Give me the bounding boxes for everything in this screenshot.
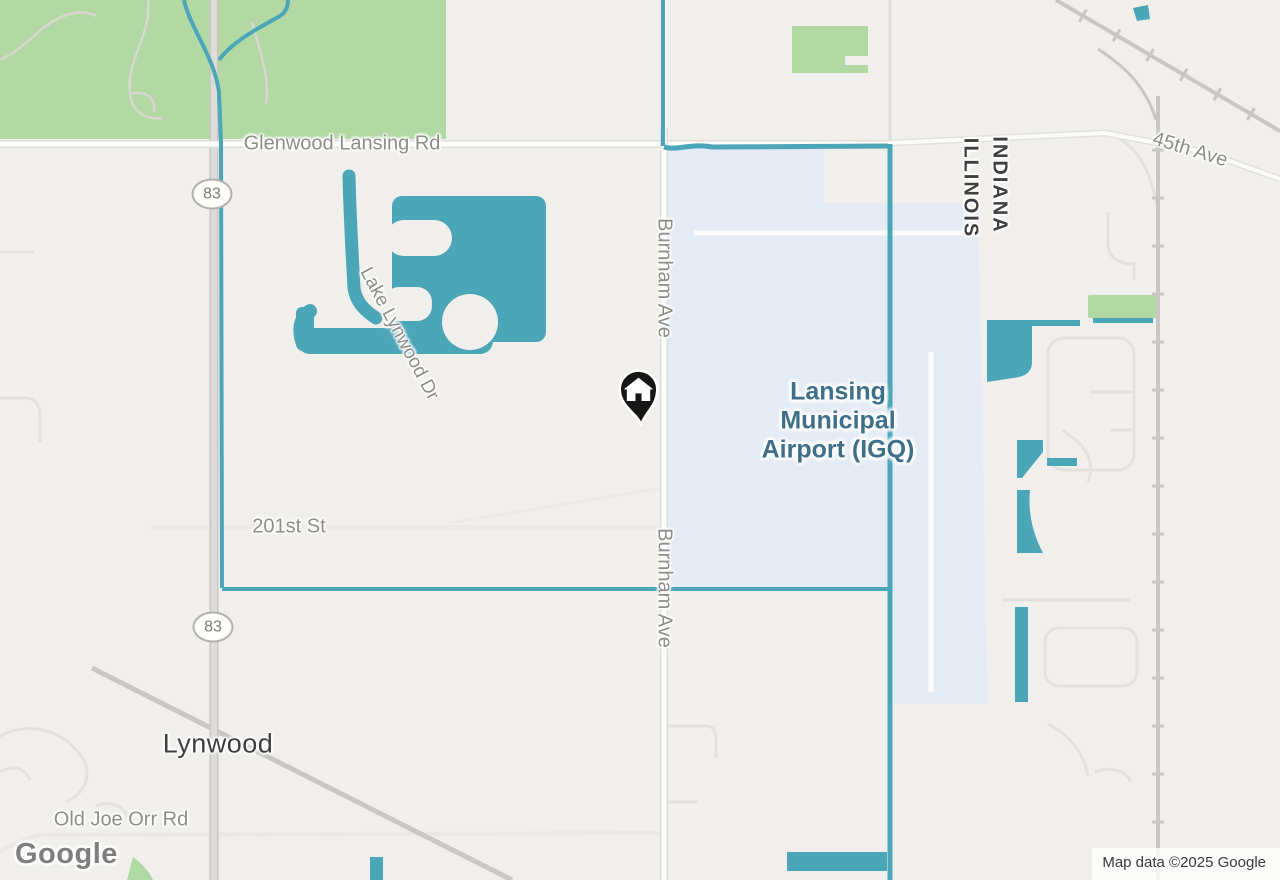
park-notch (845, 56, 868, 65)
map-attribution: Map data ©2025 Google (1092, 848, 1280, 880)
route-83-shield-south: 83 (193, 612, 234, 643)
route-83-shield-north-text: 83 (203, 185, 221, 203)
route-83-shield-south-text: 83 (204, 618, 222, 636)
home-pin-icon (614, 367, 663, 430)
park-areas (0, 0, 1157, 880)
map-canvas[interactable]: Glenwood Lansing Rd Burnham Ave Burnham … (0, 0, 1280, 880)
map-geometry (0, 0, 1280, 880)
route-83-shield-north: 83 (192, 179, 233, 210)
home-place-marker[interactable] (614, 367, 663, 430)
lake-lynwood (296, 176, 546, 350)
google-logo[interactable]: Google (15, 838, 118, 871)
